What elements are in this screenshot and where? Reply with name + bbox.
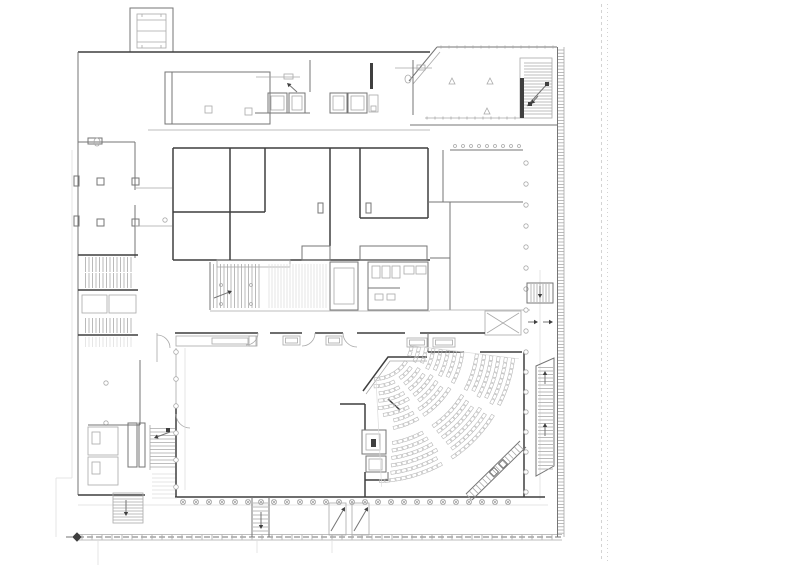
door-jamb bbox=[366, 203, 371, 213]
auditorium-seat bbox=[380, 376, 385, 380]
auditorium-seat bbox=[451, 445, 457, 450]
auditorium-seat bbox=[413, 357, 418, 363]
auditorium-seat bbox=[397, 447, 402, 451]
auditorium-seat bbox=[407, 366, 412, 372]
auditorium-seat bbox=[384, 390, 389, 394]
column-dot bbox=[524, 161, 528, 165]
bench-inner bbox=[329, 338, 340, 343]
floor-drain bbox=[163, 218, 167, 222]
auditorium-seat bbox=[389, 396, 394, 400]
auditorium-seat bbox=[464, 385, 469, 391]
auditorium-seat bbox=[473, 412, 478, 418]
column-dot bbox=[486, 145, 489, 148]
auditorium-seat bbox=[490, 399, 495, 405]
auditorium-seat bbox=[392, 441, 397, 445]
elevator-cab bbox=[351, 96, 364, 110]
auditorium-seat bbox=[418, 406, 424, 411]
column-dot bbox=[524, 182, 528, 186]
sliding-door bbox=[284, 74, 293, 79]
auditorium-seat bbox=[408, 376, 414, 381]
auditorium-seat bbox=[420, 373, 425, 379]
wall-pier bbox=[370, 63, 373, 89]
auditorium-seat bbox=[426, 364, 431, 370]
auditorium-seat bbox=[445, 412, 451, 418]
ramp-arrow bbox=[331, 510, 343, 531]
auditorium-seat bbox=[469, 375, 474, 380]
auditorium-seat bbox=[466, 420, 471, 426]
auditorium-seat bbox=[430, 354, 434, 359]
auditorium-seat bbox=[422, 469, 427, 474]
auditorium-seat bbox=[465, 410, 470, 416]
column-dot bbox=[478, 145, 481, 148]
auditorium-seat bbox=[479, 428, 484, 434]
auditorium-seat bbox=[427, 399, 433, 404]
auditorium-seat bbox=[418, 397, 424, 402]
auditorium-seat bbox=[409, 346, 413, 351]
column-dot bbox=[454, 145, 457, 148]
auditorium-seat bbox=[397, 454, 402, 458]
column-dot bbox=[510, 145, 513, 148]
column-dot bbox=[174, 377, 179, 382]
small-room bbox=[88, 427, 118, 455]
auditorium-seat bbox=[474, 381, 479, 386]
auditorium-seat bbox=[509, 369, 513, 374]
auditorium-seat bbox=[482, 355, 486, 360]
auditorium-seat bbox=[441, 425, 447, 430]
column-dot bbox=[524, 329, 528, 333]
auditorium-seat bbox=[450, 436, 456, 441]
auditorium-seat bbox=[433, 365, 438, 370]
auditorium-seat bbox=[385, 382, 390, 386]
column-dot bbox=[174, 458, 179, 463]
auditorium-seat bbox=[408, 385, 414, 390]
column-dot bbox=[174, 404, 179, 409]
auditorium-seat bbox=[488, 361, 492, 366]
auditorium-seat bbox=[504, 385, 509, 390]
auditorium-seat bbox=[401, 468, 406, 472]
fixture bbox=[416, 266, 426, 274]
bench-inner bbox=[212, 338, 248, 344]
auditorium-seat bbox=[434, 391, 439, 397]
fixture bbox=[245, 108, 252, 115]
auditorium-seat bbox=[472, 365, 476, 370]
auditorium-seat bbox=[379, 399, 384, 403]
column-dot bbox=[502, 145, 505, 148]
auditorium-seat bbox=[437, 462, 443, 467]
door-jamb bbox=[318, 203, 323, 213]
column-dot bbox=[518, 145, 521, 148]
ramp-hatch bbox=[515, 447, 520, 452]
auditorium-seat bbox=[474, 359, 478, 364]
auditorium-seat bbox=[408, 420, 414, 425]
column-dot bbox=[524, 350, 528, 354]
auditorium-seat bbox=[431, 348, 435, 353]
stair-marker bbox=[166, 428, 170, 432]
stair-direction-arrow-head bbox=[538, 294, 542, 298]
auditorium-seat bbox=[415, 368, 420, 374]
auditorium-seat bbox=[495, 389, 500, 394]
stair-marker bbox=[545, 82, 549, 86]
auditorium-seat bbox=[460, 352, 464, 357]
auditorium-seat bbox=[417, 387, 423, 392]
auditorium-seat bbox=[467, 380, 472, 385]
fixture bbox=[92, 432, 100, 444]
auditorium-seat bbox=[458, 363, 462, 368]
column-dot bbox=[524, 390, 528, 394]
auditorium-seat bbox=[441, 366, 446, 371]
shaft bbox=[139, 423, 145, 467]
column-dot bbox=[524, 470, 528, 474]
auditorium-seat bbox=[391, 471, 396, 475]
ramp-hatch bbox=[505, 457, 510, 462]
auditorium-seat bbox=[494, 367, 498, 372]
auditorium-seat bbox=[498, 379, 502, 384]
fixture bbox=[92, 462, 100, 474]
stair-direction-arrow bbox=[214, 292, 228, 298]
auditorium-seat bbox=[394, 410, 399, 414]
auditorium-seat bbox=[383, 405, 388, 409]
auditorium-seat bbox=[413, 434, 418, 439]
stair-direction-arrow bbox=[290, 86, 297, 92]
auditorium-seat bbox=[510, 364, 514, 369]
auditorium-seat bbox=[478, 371, 482, 376]
auditorium-seat bbox=[463, 424, 468, 430]
auditorium-seat bbox=[416, 378, 421, 384]
auditorium-seat bbox=[390, 380, 396, 385]
auditorium-seat bbox=[463, 400, 468, 406]
auditorium-seat bbox=[497, 384, 502, 389]
sprinkler-symbol bbox=[484, 108, 490, 114]
auditorium-seat bbox=[412, 465, 417, 469]
auditorium-seat bbox=[480, 365, 484, 370]
auditorium-seat bbox=[511, 358, 515, 363]
auditorium-seat bbox=[428, 359, 433, 364]
auditorium-seat bbox=[500, 395, 505, 401]
auditorium-seat bbox=[448, 367, 453, 372]
auditorium-seat bbox=[422, 453, 428, 458]
auditorium-seat bbox=[470, 416, 475, 422]
floor-drain bbox=[104, 381, 108, 385]
auditorium-seat bbox=[417, 463, 422, 468]
auditorium-seat bbox=[432, 422, 438, 427]
auditorium-seat bbox=[476, 376, 481, 381]
stall bbox=[372, 266, 380, 278]
auditorium-seat bbox=[482, 382, 487, 387]
ramp-hatch bbox=[476, 485, 481, 490]
auditorium-seat bbox=[399, 392, 405, 397]
auditorium-seat bbox=[437, 428, 443, 433]
auditorium-seat bbox=[459, 394, 464, 400]
auditorium-seat bbox=[417, 347, 421, 352]
elevator-cab bbox=[271, 96, 284, 110]
ramp-hatch bbox=[479, 482, 484, 487]
auditorium-seat bbox=[477, 392, 482, 398]
auditorium-seat bbox=[491, 378, 495, 383]
auditorium-seat bbox=[467, 430, 472, 436]
column bbox=[97, 178, 104, 185]
auditorium-seat bbox=[402, 461, 407, 465]
auditorium-seat bbox=[424, 348, 428, 353]
auditorium-seat bbox=[412, 457, 417, 462]
auditorium-seat bbox=[496, 357, 500, 362]
stair-direction-arrow bbox=[158, 432, 170, 437]
elevator-cab bbox=[334, 268, 354, 304]
small-room bbox=[82, 295, 107, 313]
auditorium-seat bbox=[452, 356, 456, 361]
auditorium-seat bbox=[423, 445, 429, 450]
auditorium-seat bbox=[443, 361, 447, 366]
auditorium-seat bbox=[399, 400, 405, 405]
auditorium-seat bbox=[444, 356, 448, 361]
column-dot bbox=[524, 410, 528, 414]
auditorium-seat bbox=[471, 426, 476, 432]
auditorium-seat bbox=[393, 425, 398, 429]
auditorium-seat bbox=[458, 419, 463, 425]
auditorium-seat bbox=[451, 378, 456, 384]
auditorium-seat bbox=[478, 418, 483, 424]
escalator-arrow-head bbox=[543, 371, 547, 375]
auditorium-seat bbox=[408, 436, 413, 441]
auditorium-seat bbox=[402, 453, 407, 457]
bench-inner bbox=[436, 340, 453, 345]
auditorium-seat bbox=[457, 409, 462, 415]
auditorium-seat bbox=[412, 382, 418, 387]
auditorium-seat bbox=[417, 471, 422, 476]
stall bbox=[382, 266, 390, 278]
auditorium-seat bbox=[394, 369, 400, 374]
auditorium-seat bbox=[412, 473, 417, 477]
auditorium-seat bbox=[452, 403, 457, 409]
auditorium-seat bbox=[446, 430, 452, 435]
auditorium-seat bbox=[445, 421, 451, 426]
auditorium-seat bbox=[468, 440, 474, 445]
auditorium-seat bbox=[422, 461, 427, 466]
door-swing bbox=[302, 333, 315, 346]
column-dot bbox=[494, 145, 497, 148]
auditorium-seat bbox=[391, 463, 396, 467]
auditorium-seat bbox=[404, 414, 409, 419]
auditorium-seat bbox=[413, 391, 419, 396]
column-dot bbox=[524, 245, 528, 249]
auditorium-seat bbox=[459, 357, 463, 362]
auditorium-seat bbox=[503, 363, 507, 368]
auditorium-seat bbox=[383, 413, 388, 417]
ramp-arrow bbox=[354, 510, 366, 531]
column-dot bbox=[174, 350, 179, 355]
service-room bbox=[165, 72, 270, 124]
column-dot bbox=[524, 430, 528, 434]
auditorium-seat bbox=[506, 380, 510, 385]
auditorium-seat bbox=[403, 422, 408, 427]
auditorium-seat bbox=[427, 408, 433, 413]
ramp-hatch bbox=[508, 454, 513, 459]
auditorium-seat bbox=[412, 372, 417, 378]
auditorium-seat bbox=[418, 431, 424, 436]
shaft bbox=[128, 423, 137, 467]
lavatory bbox=[387, 294, 395, 300]
auditorium-seat bbox=[402, 445, 407, 449]
auditorium-seat bbox=[427, 459, 433, 464]
auditorium-seat bbox=[487, 388, 492, 393]
auditorium-seat bbox=[399, 374, 405, 379]
auditorium-seat bbox=[435, 360, 440, 365]
floor-plan-page bbox=[0, 0, 800, 566]
auditorium-seat bbox=[425, 379, 430, 385]
auditorium-seat bbox=[432, 448, 438, 453]
auditorium-seat bbox=[462, 415, 467, 421]
ramp-hatch bbox=[486, 476, 491, 481]
auditorium-seat bbox=[459, 428, 465, 433]
auditorium-seat bbox=[446, 439, 452, 444]
ramp-hatch bbox=[518, 444, 523, 449]
auditorium-seat bbox=[396, 477, 401, 481]
bench-inner bbox=[410, 340, 425, 345]
auditorium-seat bbox=[450, 427, 456, 432]
auditorium-seat bbox=[463, 434, 469, 439]
auditorium-seat bbox=[406, 475, 411, 479]
column-dot bbox=[524, 203, 528, 207]
auditorium-seat bbox=[378, 406, 383, 410]
column-dot bbox=[174, 485, 179, 490]
auditorium-seat bbox=[390, 478, 395, 482]
auditorium-seat bbox=[398, 424, 403, 428]
elevator-cab bbox=[333, 96, 344, 110]
auditorium-seat bbox=[408, 444, 413, 449]
auditorium-seat bbox=[479, 387, 484, 393]
ramp-hatch bbox=[470, 491, 475, 496]
newel bbox=[220, 284, 223, 287]
auditorium-seat bbox=[427, 443, 433, 448]
auditorium-seat bbox=[398, 439, 403, 443]
auditorium-seat bbox=[390, 372, 396, 377]
auditorium-seat bbox=[485, 372, 489, 377]
auditorium-seat bbox=[422, 393, 428, 398]
auditorium-seat bbox=[454, 373, 459, 378]
auditorium-seat bbox=[485, 393, 490, 399]
closet bbox=[369, 95, 378, 112]
sprinkler-symbol bbox=[487, 78, 493, 84]
ramp-diagonal bbox=[466, 441, 520, 494]
auditorium-seat bbox=[475, 422, 480, 428]
ramp-hatch bbox=[473, 488, 478, 493]
roof-tower bbox=[130, 8, 173, 52]
auditorium-seat bbox=[392, 448, 397, 452]
auditorium-seat bbox=[437, 355, 441, 360]
fixture bbox=[404, 266, 414, 274]
auditorium-seat bbox=[407, 459, 412, 463]
column-dot bbox=[462, 145, 465, 148]
auditorium-seat bbox=[464, 443, 470, 448]
auditorium-seat bbox=[432, 457, 438, 462]
door-swing bbox=[157, 335, 170, 348]
auditorium-seat bbox=[481, 360, 485, 365]
auditorium-seat bbox=[475, 354, 479, 359]
auditorium-seat bbox=[429, 385, 434, 391]
column-dot bbox=[174, 431, 179, 436]
auditorium-seat bbox=[456, 368, 461, 373]
auditorium-seat bbox=[446, 372, 451, 378]
auditorium-seat bbox=[468, 406, 473, 412]
auditorium-seat bbox=[435, 400, 440, 406]
auditorium-seat bbox=[489, 414, 494, 420]
wall-jog bbox=[217, 260, 290, 267]
auditorium-seat bbox=[427, 467, 432, 472]
auditorium-seat bbox=[379, 391, 384, 395]
small-room bbox=[109, 295, 136, 313]
auditorium-seat bbox=[428, 375, 433, 381]
auditorium-seat bbox=[430, 395, 435, 401]
auditorium-seat bbox=[500, 373, 504, 378]
auditorium-seat bbox=[455, 450, 461, 455]
auditorium-seat bbox=[439, 396, 444, 402]
auditorium-seat bbox=[379, 384, 384, 388]
door-swing bbox=[343, 333, 357, 347]
bench bbox=[176, 336, 256, 346]
auditorium-seat bbox=[504, 357, 508, 362]
lavatory bbox=[375, 294, 383, 300]
auditorium-seat bbox=[385, 374, 390, 379]
auditorium-seat bbox=[396, 462, 401, 466]
ramp-hatch bbox=[512, 450, 517, 455]
auditorium-seat bbox=[454, 423, 460, 429]
auditorium-seat bbox=[501, 368, 505, 373]
restroom bbox=[368, 262, 428, 310]
auditorium-seat bbox=[449, 417, 455, 423]
ramp-hatch bbox=[489, 472, 494, 477]
booth-equipment bbox=[371, 439, 376, 447]
auditorium-seat bbox=[433, 380, 438, 386]
auditorium-seat bbox=[418, 447, 423, 452]
auditorium-seat bbox=[422, 402, 428, 407]
auditorium-seat bbox=[446, 387, 451, 393]
auditorium-seat bbox=[399, 416, 404, 421]
auditorium-seat bbox=[391, 456, 396, 460]
fixture bbox=[205, 106, 212, 113]
auditorium-seat bbox=[408, 351, 413, 356]
auditorium-seat bbox=[413, 417, 419, 422]
auditorium-seat bbox=[492, 394, 497, 400]
auditorium-seat bbox=[389, 388, 394, 393]
auditorium-seat bbox=[394, 394, 399, 399]
auditorium-seat bbox=[423, 437, 429, 442]
auditorium-seat bbox=[455, 399, 460, 405]
auditorium-seat bbox=[441, 434, 447, 439]
small-room bbox=[88, 457, 118, 485]
column-dot bbox=[524, 308, 528, 312]
auditorium-seat bbox=[497, 400, 502, 406]
auditorium-seat bbox=[413, 442, 418, 447]
auditorium-seat bbox=[450, 362, 454, 367]
closet bbox=[360, 246, 427, 260]
auditorium-seat bbox=[407, 451, 412, 455]
column bbox=[97, 219, 104, 226]
auditorium-seat bbox=[403, 370, 409, 376]
door-swing bbox=[176, 414, 190, 428]
auditorium-seat bbox=[396, 470, 401, 474]
auditorium-seat bbox=[423, 411, 429, 416]
closet bbox=[302, 246, 330, 260]
ramp-hatch bbox=[483, 479, 488, 484]
auditorium-seat bbox=[398, 365, 404, 371]
auditorium-seat bbox=[417, 456, 422, 461]
auditorium-seat bbox=[460, 447, 466, 452]
auditorium-seat bbox=[403, 438, 408, 442]
stall bbox=[392, 266, 400, 278]
column-dot bbox=[524, 224, 528, 228]
column-dot bbox=[524, 490, 528, 494]
auditorium-seat bbox=[421, 383, 426, 389]
auditorium-seat bbox=[459, 438, 465, 443]
